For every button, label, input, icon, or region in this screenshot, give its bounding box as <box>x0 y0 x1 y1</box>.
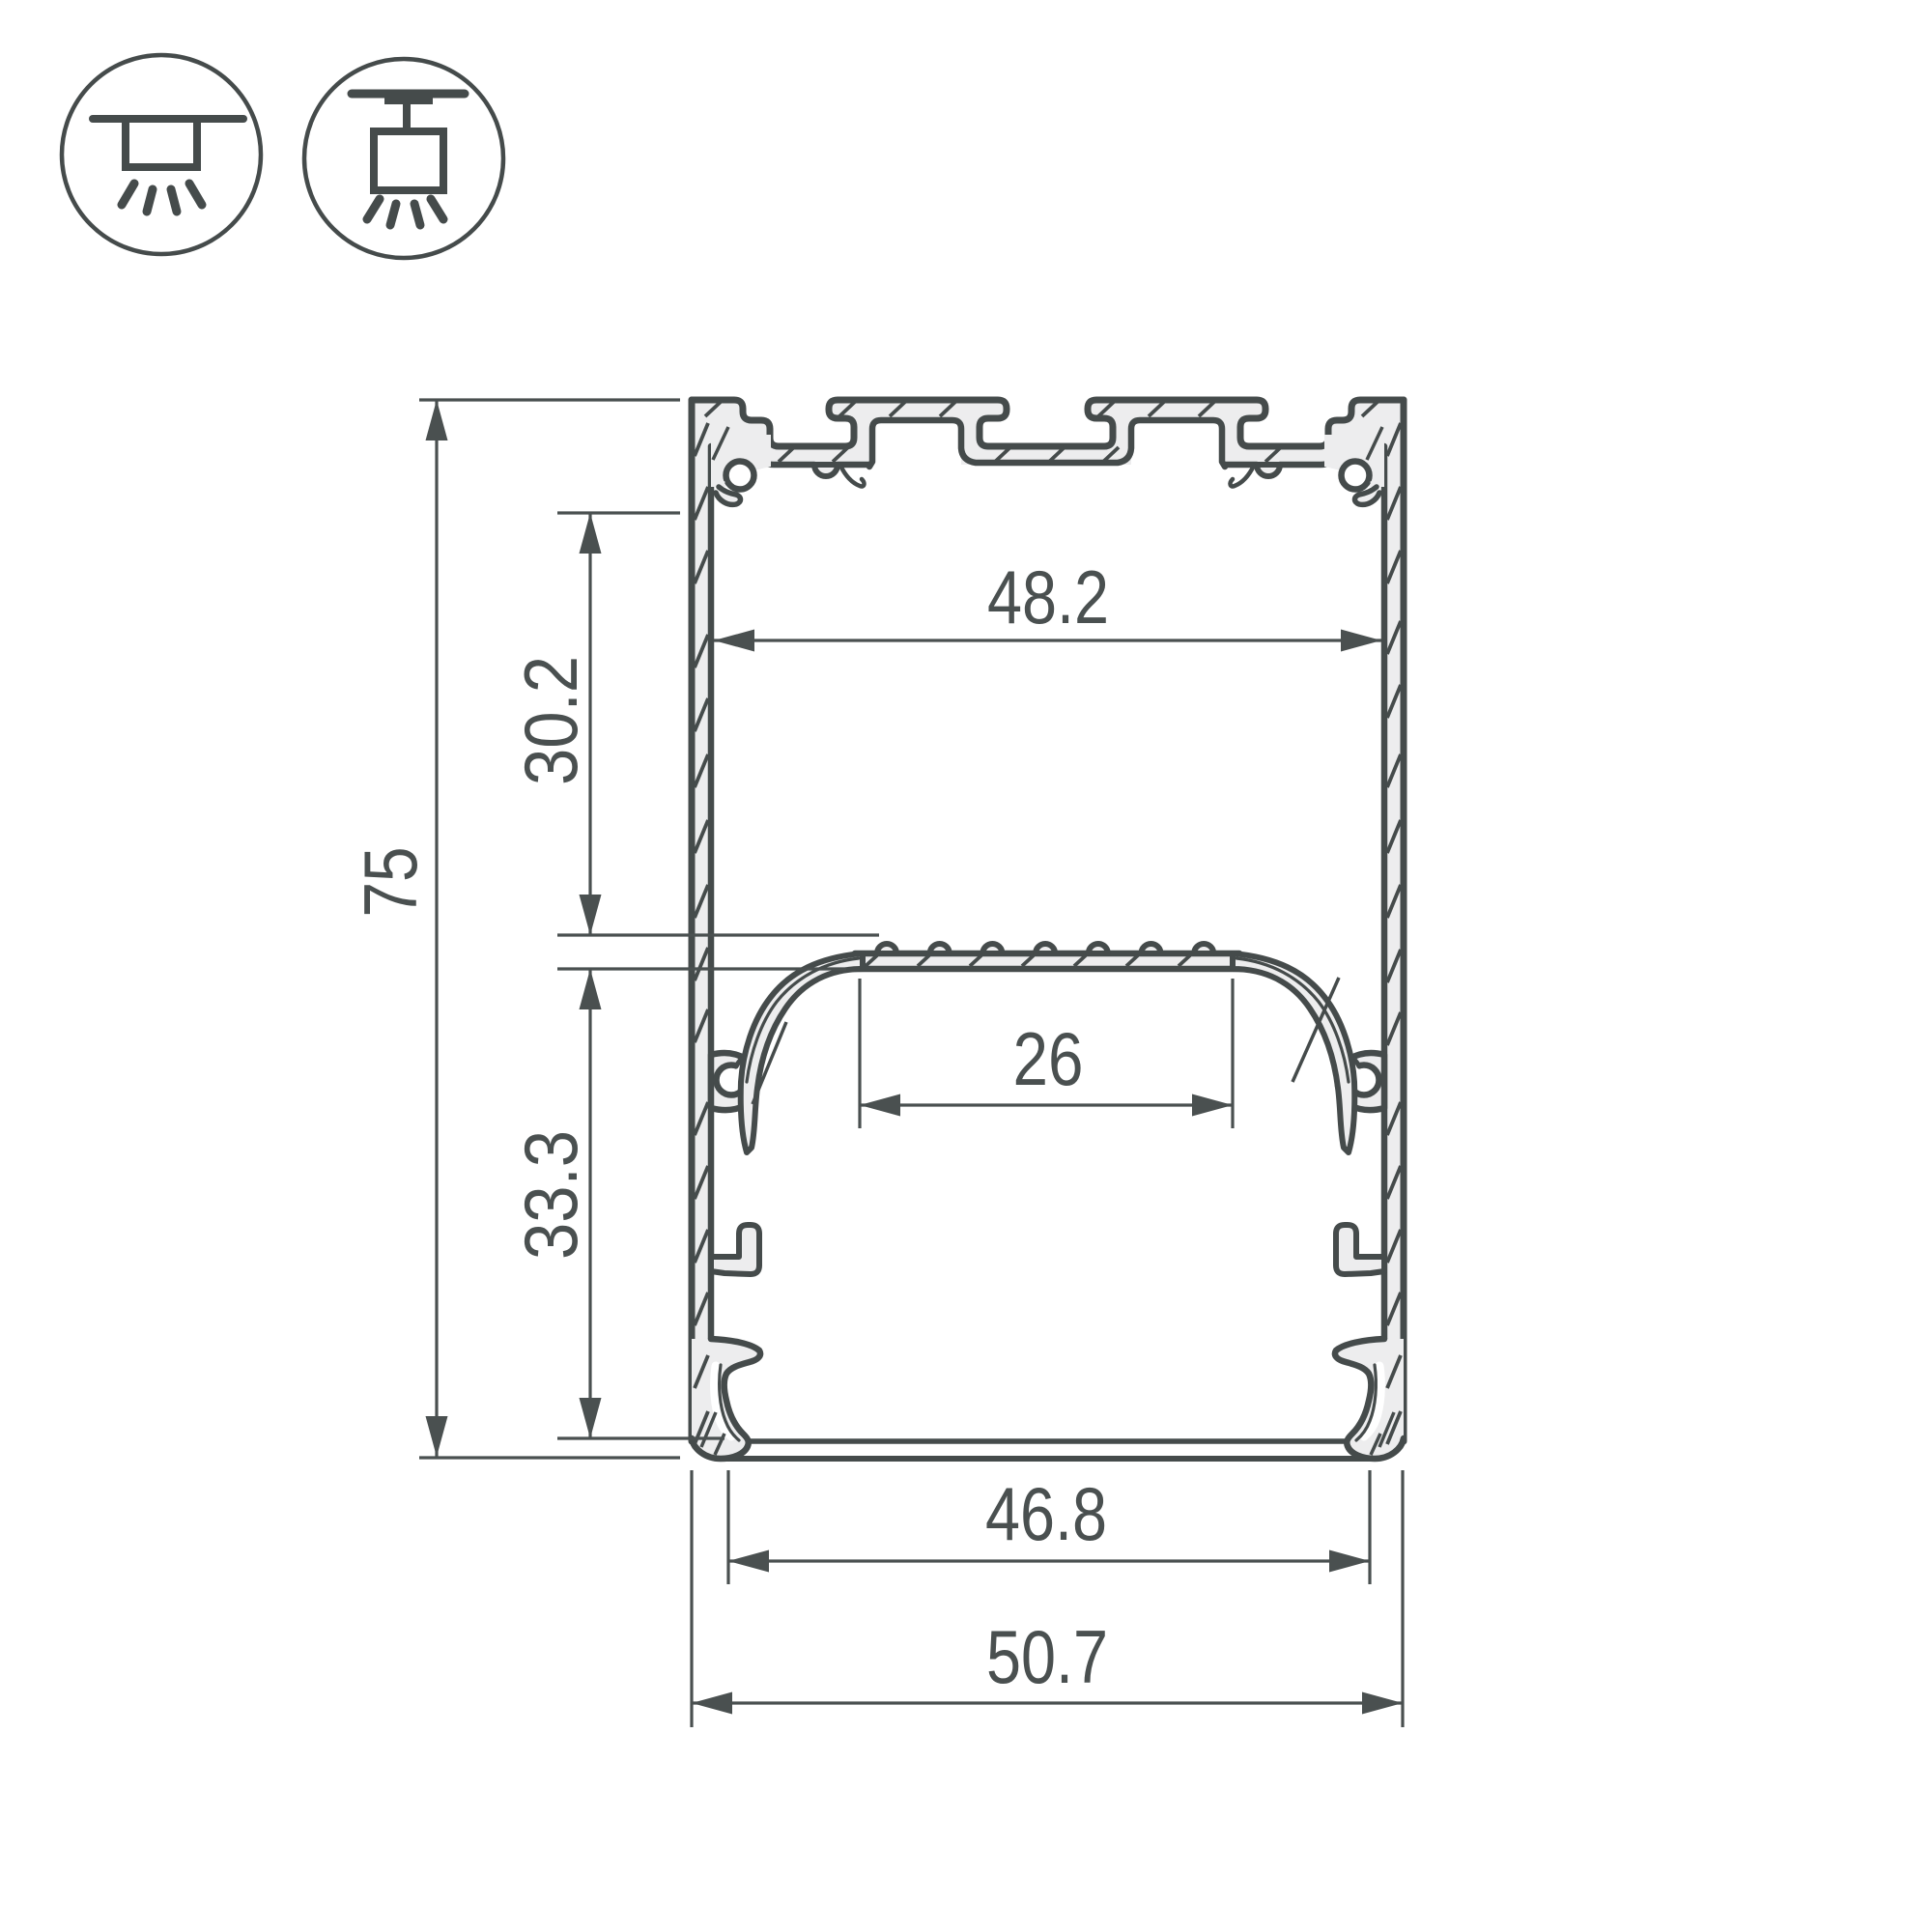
svg-text:30.2: 30.2 <box>508 656 593 785</box>
svg-text:48.2: 48.2 <box>987 554 1109 639</box>
svg-text:33.3: 33.3 <box>508 1130 593 1260</box>
svg-text:46.8: 46.8 <box>985 1471 1107 1556</box>
svg-text:75: 75 <box>348 847 433 918</box>
svg-text:50.7: 50.7 <box>986 1614 1108 1699</box>
svg-text:26: 26 <box>1013 1016 1084 1101</box>
